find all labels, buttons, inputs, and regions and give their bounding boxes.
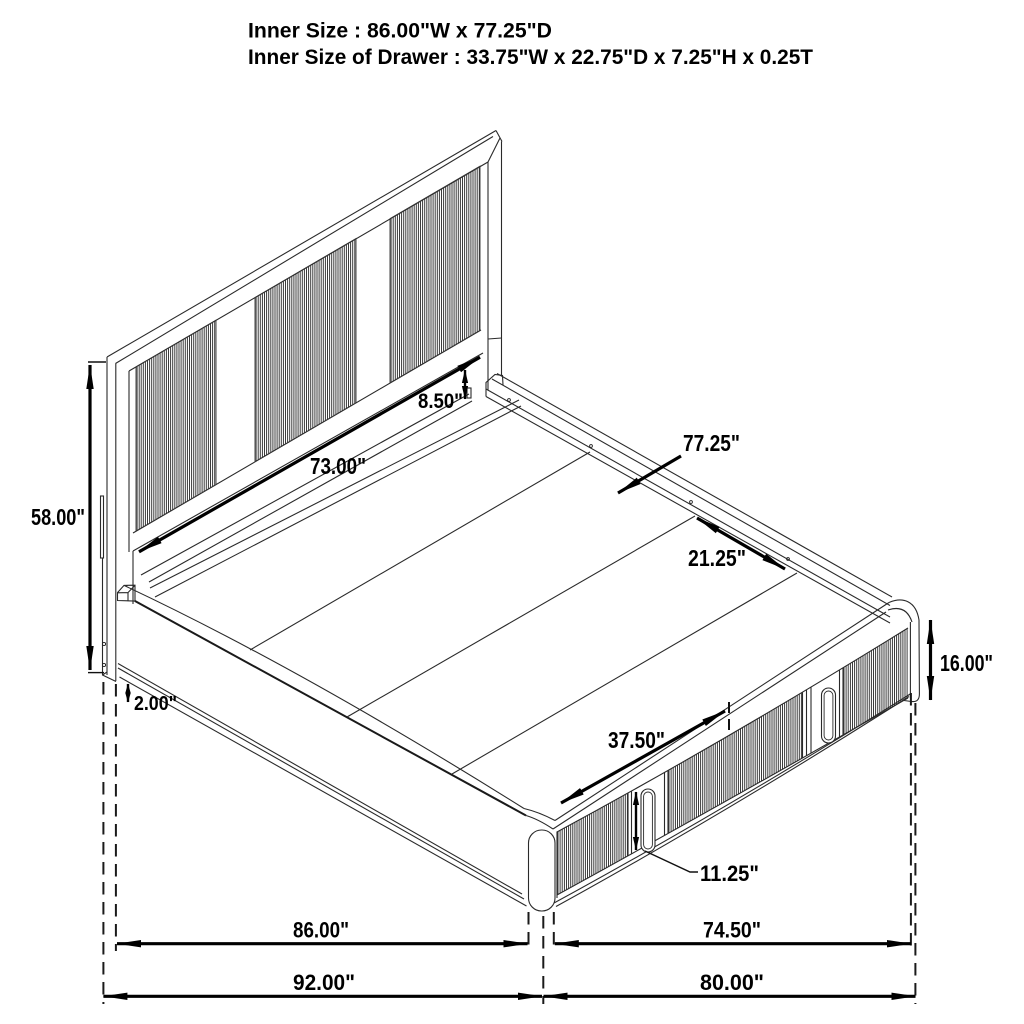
svg-text:80.00": 80.00" [700, 970, 764, 995]
svg-text:8.50": 8.50" [418, 390, 463, 413]
svg-text:58.00": 58.00" [31, 504, 85, 530]
svg-text:86.00": 86.00" [293, 918, 349, 943]
svg-text:21.25": 21.25" [688, 545, 746, 571]
svg-text:74.50": 74.50" [703, 918, 761, 943]
svg-text:2.00": 2.00" [134, 693, 177, 715]
svg-text:77.25": 77.25" [683, 430, 740, 456]
svg-text:Inner Size : 86.00"W x 77.25"D: Inner Size : 86.00"W x 77.25"D [248, 19, 552, 43]
svg-text:73.00": 73.00" [310, 453, 366, 479]
svg-text:11.25": 11.25" [700, 861, 759, 886]
svg-text:Inner Size of Drawer : 33.75"W: Inner Size of Drawer : 33.75"W x 22.75"D… [248, 45, 813, 69]
svg-text:92.00": 92.00" [293, 970, 355, 995]
svg-text:37.50": 37.50" [608, 727, 665, 753]
svg-text:16.00": 16.00" [940, 650, 993, 676]
